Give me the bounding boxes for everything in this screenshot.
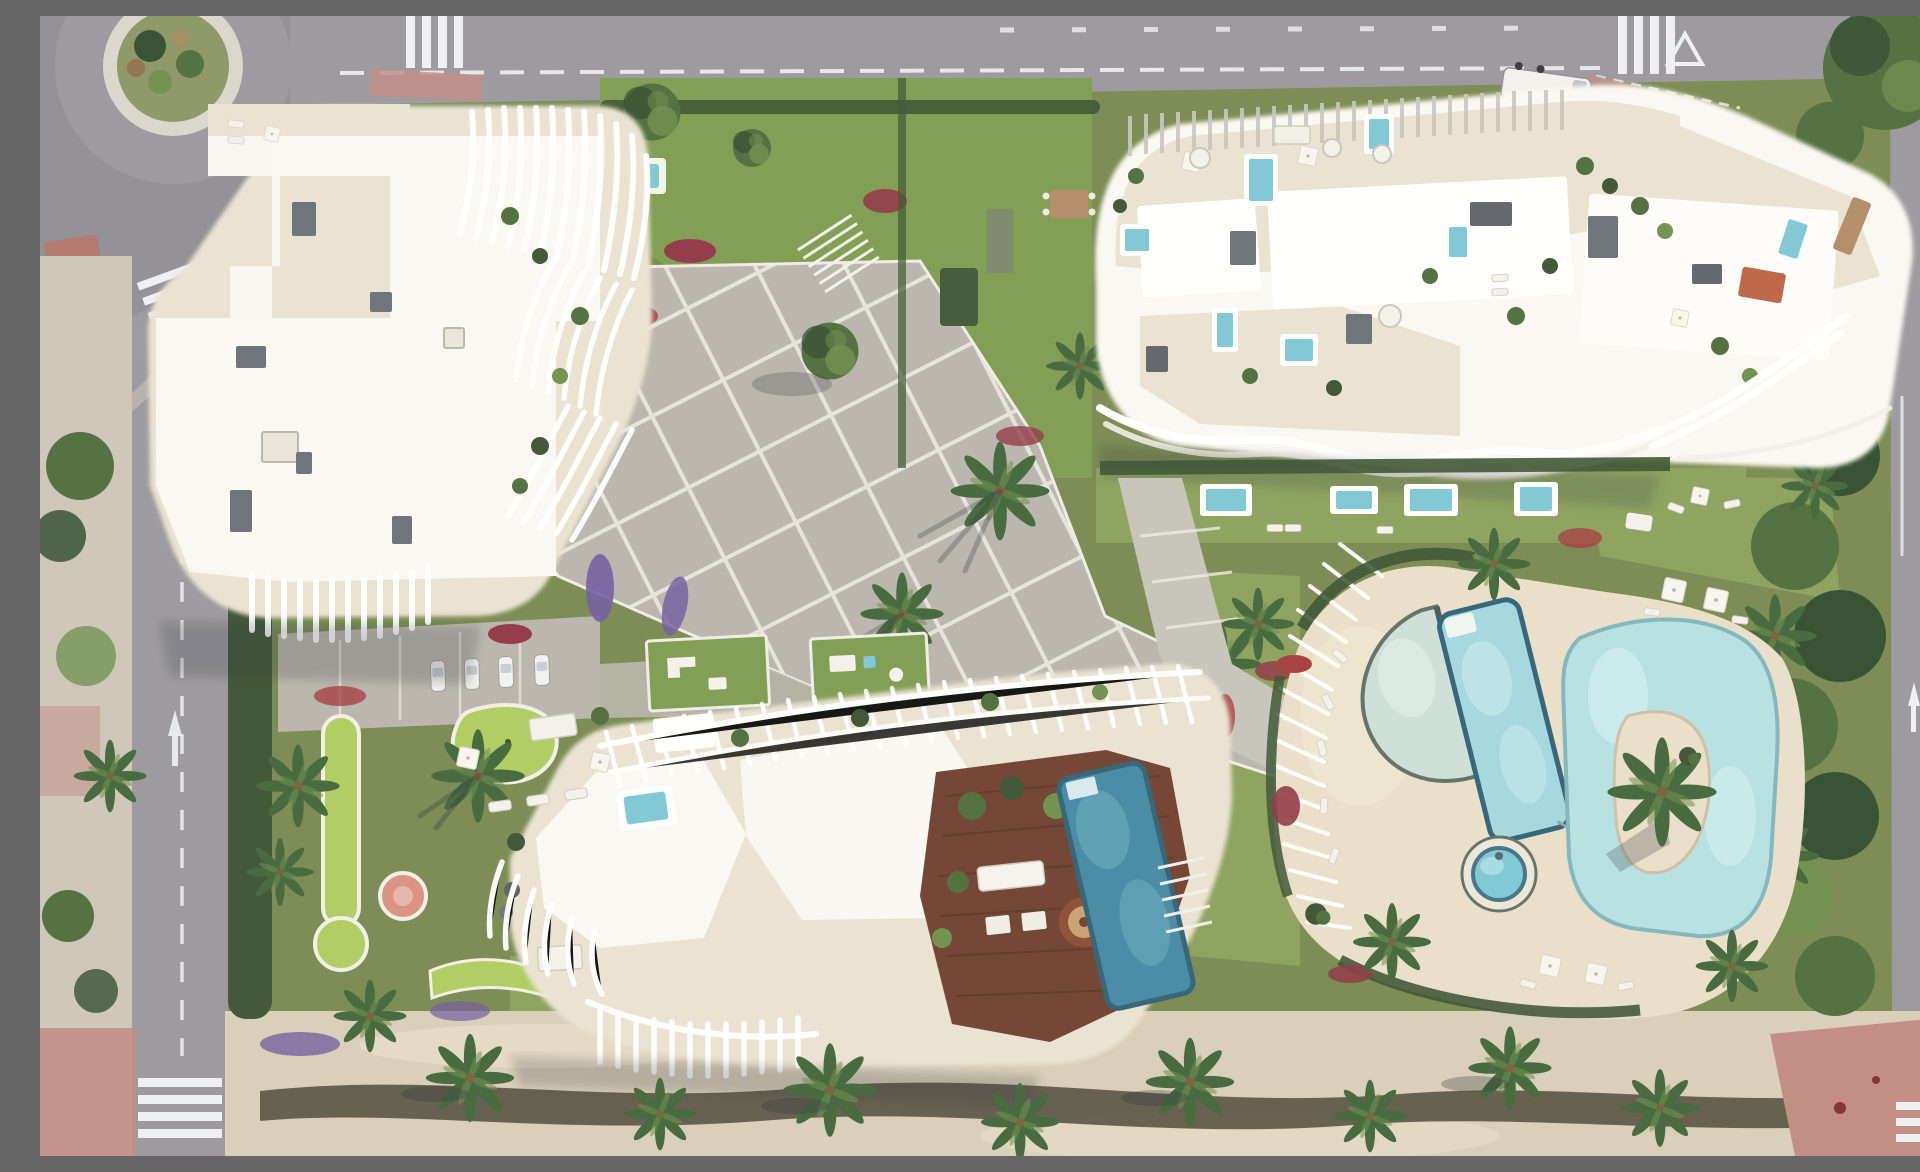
light-wash (40, 16, 1920, 1156)
aerial-render (40, 16, 1920, 1156)
aerial-svg (40, 16, 1920, 1156)
